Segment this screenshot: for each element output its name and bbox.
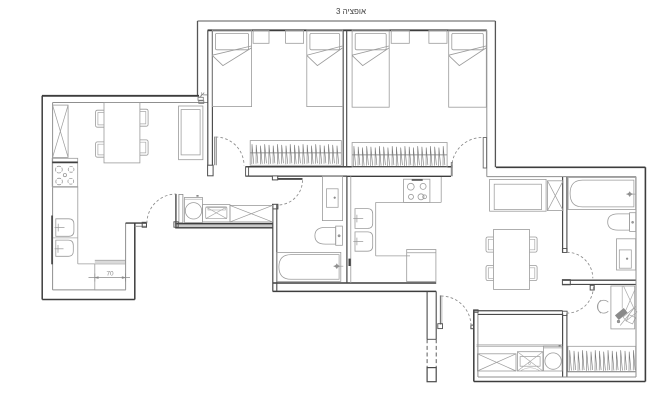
svg-text:3 אופציה: 3 אופציה xyxy=(336,7,366,16)
svg-text:70: 70 xyxy=(106,271,114,278)
